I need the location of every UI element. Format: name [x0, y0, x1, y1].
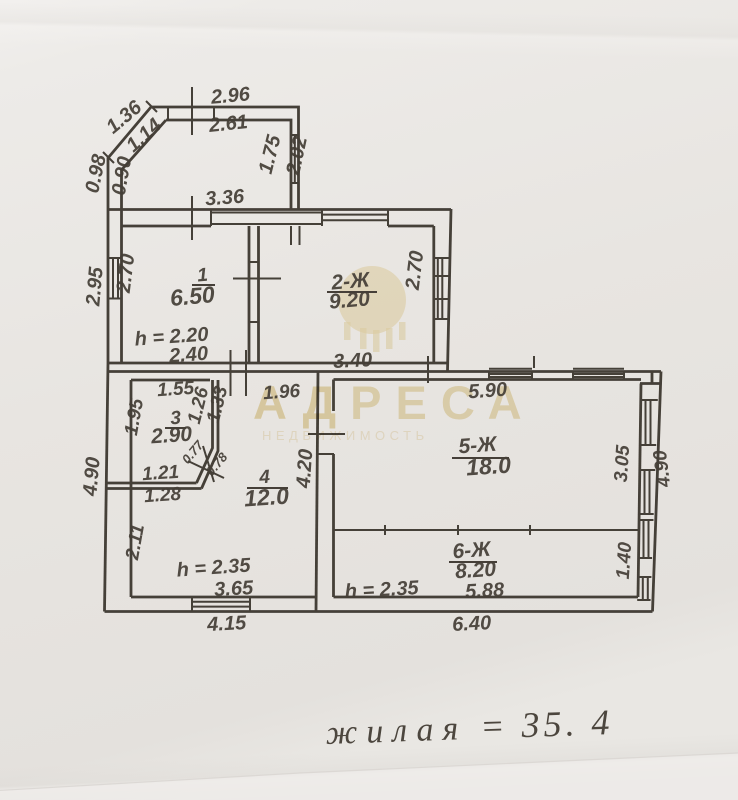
svg-text:h = 2.35: h = 2.35 [344, 577, 420, 603]
svg-text:18.0: 18.0 [465, 451, 512, 480]
svg-text:2.61: 2.61 [207, 111, 249, 137]
svg-text:12.0: 12.0 [243, 482, 290, 511]
svg-text:3.05: 3.05 [611, 444, 635, 483]
svg-text:1.28: 1.28 [143, 484, 182, 508]
svg-text:НЕДВИЖИМОСТЬ: НЕДВИЖИМОСТЬ [262, 428, 429, 443]
svg-text:2.96: 2.96 [209, 83, 252, 108]
svg-text:1.40: 1.40 [613, 541, 637, 580]
svg-text:9.20: 9.20 [328, 287, 371, 314]
svg-text:4.20: 4.20 [293, 448, 318, 489]
svg-text:6.50: 6.50 [169, 281, 216, 311]
svg-text:2.95: 2.95 [82, 265, 107, 308]
svg-text:1.21: 1.21 [141, 462, 179, 486]
svg-text:2.90: 2.90 [149, 423, 193, 449]
svg-text:2.40: 2.40 [167, 343, 208, 368]
svg-text:1.96: 1.96 [262, 381, 301, 405]
svg-text:3.36: 3.36 [204, 186, 245, 211]
svg-text:5.90: 5.90 [467, 379, 507, 404]
svg-text:4.90: 4.90 [79, 456, 104, 498]
svg-text:4.15: 4.15 [206, 612, 248, 636]
svg-text:3.40: 3.40 [333, 349, 373, 373]
svg-text:3.65: 3.65 [214, 577, 255, 601]
svg-text:5.88: 5.88 [465, 579, 506, 603]
svg-text:6.40: 6.40 [452, 612, 492, 636]
